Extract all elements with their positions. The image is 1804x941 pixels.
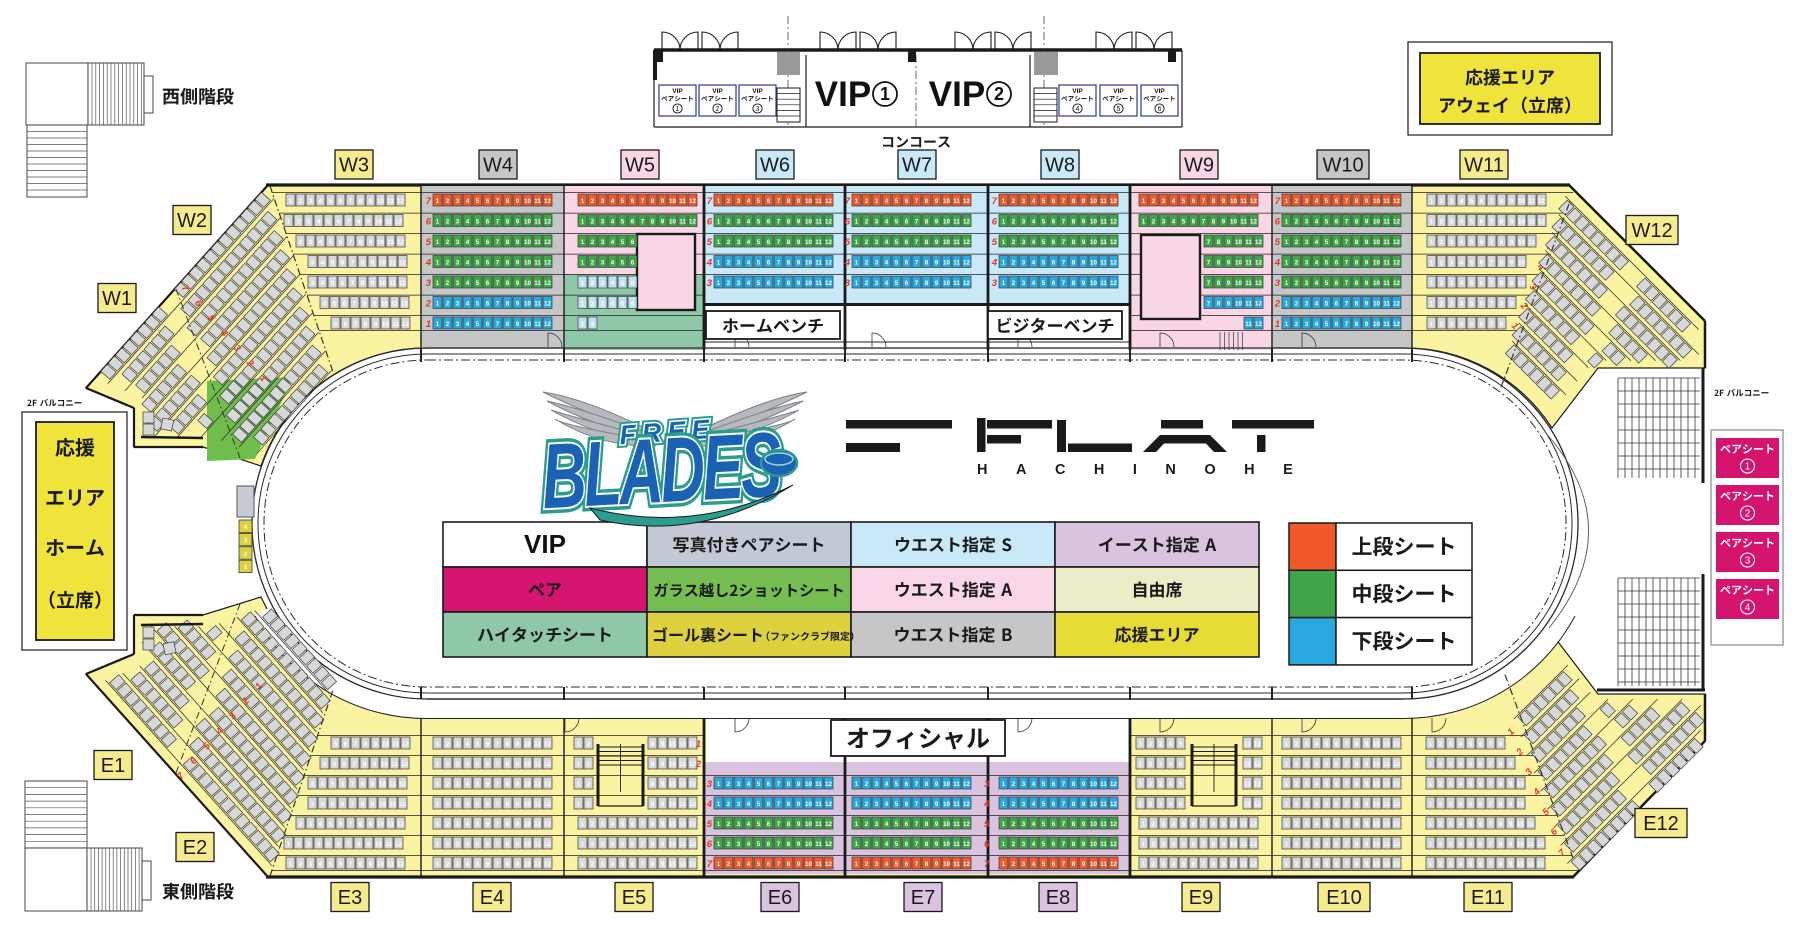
svg-text:7: 7 [496,801,500,808]
svg-text:12: 12 [544,198,551,205]
svg-text:7: 7 [1062,259,1066,266]
svg-text:W7: W7 [902,155,932,177]
svg-text:7: 7 [1345,761,1349,768]
svg-text:7: 7 [496,841,500,848]
svg-text:7: 7 [349,821,353,828]
svg-text:11: 11 [1240,218,1247,225]
svg-text:11: 11 [534,841,541,848]
svg-text:2: 2 [1440,300,1444,307]
svg-text:11: 11 [1528,198,1535,205]
svg-text:3: 3 [737,821,741,828]
svg-text:8: 8 [357,218,361,225]
svg-text:3: 3 [1159,741,1163,748]
svg-text:2: 2 [727,861,731,868]
svg-text:8: 8 [506,218,510,225]
svg-text:5: 5 [621,280,625,287]
svg-text:6: 6 [992,217,998,228]
svg-text:4: 4 [611,300,615,307]
svg-text:4: 4 [1460,198,1464,205]
svg-text:11: 11 [1240,841,1247,848]
svg-text:10: 10 [375,841,382,848]
svg-text:11: 11 [1245,321,1252,328]
svg-text:12: 12 [1393,741,1400,748]
svg-text:9: 9 [516,801,520,808]
svg-text:1: 1 [436,781,440,788]
svg-text:5: 5 [1042,198,1046,205]
svg-text:9: 9 [1222,821,1226,828]
svg-text:10: 10 [669,761,676,768]
svg-text:6: 6 [984,839,990,850]
svg-text:11: 11 [1383,198,1390,205]
svg-text:1: 1 [581,821,585,828]
svg-text:11: 11 [389,781,396,788]
svg-text:1: 1 [1142,218,1146,225]
svg-text:4: 4 [885,239,889,246]
svg-text:10: 10 [669,841,676,848]
svg-text:4: 4 [885,280,889,287]
svg-text:9: 9 [1510,300,1514,307]
svg-text:8: 8 [925,218,929,225]
svg-text:5: 5 [329,198,333,205]
svg-text:2: 2 [865,259,869,266]
svg-text:3: 3 [875,280,879,287]
svg-text:9: 9 [1509,781,1513,788]
svg-text:4: 4 [1315,861,1319,868]
svg-text:2: 2 [1295,280,1299,287]
svg-text:7: 7 [1062,841,1066,848]
svg-text:2: 2 [1012,781,1016,788]
svg-text:12: 12 [963,259,970,266]
svg-text:3: 3 [307,218,311,225]
svg-text:2: 2 [727,841,731,848]
svg-text:8: 8 [651,741,655,748]
svg-text:10: 10 [1090,821,1097,828]
svg-text:12: 12 [1110,821,1117,828]
svg-text:6: 6 [486,801,490,808]
svg-text:7: 7 [1345,300,1349,307]
svg-text:9: 9 [935,218,939,225]
svg-text:5: 5 [757,821,761,828]
svg-text:6: 6 [1052,259,1056,266]
svg-text:3: 3 [601,821,605,828]
svg-text:12: 12 [825,198,832,205]
svg-text:12: 12 [544,761,551,768]
svg-text:12: 12 [963,781,970,788]
svg-text:5: 5 [757,198,761,205]
svg-text:3: 3 [1449,781,1453,788]
svg-text:5: 5 [895,801,899,808]
svg-text:9: 9 [797,841,801,848]
svg-text:5: 5 [1042,280,1046,287]
svg-text:2: 2 [1295,218,1299,225]
svg-text:12: 12 [1250,821,1257,828]
svg-text:5: 5 [895,259,899,266]
svg-text:10: 10 [1373,741,1380,748]
svg-text:6: 6 [341,781,345,788]
svg-text:12: 12 [1250,198,1257,205]
svg-text:1: 1 [1285,821,1289,828]
svg-text:11: 11 [815,259,822,266]
svg-text:1: 1 [436,741,440,748]
svg-text:5: 5 [1325,239,1329,246]
svg-text:12: 12 [1393,300,1400,307]
svg-text:3: 3 [875,821,879,828]
svg-text:11: 11 [1383,841,1390,848]
svg-text:3: 3 [875,841,879,848]
svg-text:5: 5 [1325,280,1329,287]
svg-text:3: 3 [1305,781,1309,788]
svg-text:6: 6 [343,300,347,307]
svg-text:4: 4 [991,258,998,269]
svg-text:1: 1 [287,841,291,848]
svg-text:VIP: VIP [752,88,763,95]
svg-text:12: 12 [399,801,406,808]
svg-text:9: 9 [661,218,665,225]
svg-text:1: 1 [1430,321,1434,328]
svg-text:7: 7 [777,218,781,225]
svg-text:12: 12 [1393,239,1400,246]
svg-text:3: 3 [456,198,460,205]
svg-text:4: 4 [321,801,325,808]
svg-text:12: 12 [1254,781,1261,788]
svg-text:9: 9 [935,821,939,828]
svg-text:4: 4 [1315,801,1319,808]
svg-text:4: 4 [466,841,470,848]
svg-text:11: 11 [679,198,686,205]
svg-text:11: 11 [1244,761,1251,768]
svg-text:6: 6 [486,741,490,748]
svg-text:12: 12 [1110,280,1117,287]
svg-text:E9: E9 [1189,887,1213,909]
svg-text:12: 12 [1250,218,1257,225]
svg-text:8: 8 [925,259,929,266]
svg-text:10: 10 [524,741,531,748]
svg-text:3: 3 [1305,821,1309,828]
svg-text:10: 10 [1373,841,1380,848]
svg-text:3: 3 [737,801,741,808]
svg-text:8: 8 [1072,781,1076,788]
svg-text:9: 9 [661,761,665,768]
svg-text:2: 2 [1012,801,1016,808]
svg-text:11: 11 [1240,821,1247,828]
svg-text:5: 5 [329,239,333,246]
svg-text:11: 11 [387,861,394,868]
svg-text:10: 10 [943,280,950,287]
svg-text:5: 5 [331,259,335,266]
svg-text:9: 9 [1365,761,1369,768]
svg-text:4: 4 [1460,259,1464,266]
svg-text:6: 6 [486,321,490,328]
svg-text:9: 9 [373,300,377,307]
svg-text:12: 12 [1110,218,1117,225]
svg-text:2: 2 [299,861,303,868]
svg-text:10: 10 [1517,841,1524,848]
svg-text:2: 2 [1440,218,1444,225]
svg-text:9: 9 [1222,861,1226,868]
svg-text:6: 6 [1052,861,1056,868]
svg-text:5: 5 [1042,781,1046,788]
svg-text:7: 7 [777,821,781,828]
svg-text:11: 11 [1100,218,1107,225]
svg-text:2: 2 [1745,509,1751,520]
svg-text:6: 6 [341,259,345,266]
svg-text:3: 3 [1450,321,1454,328]
svg-text:7: 7 [1345,218,1349,225]
svg-text:8: 8 [1217,280,1221,287]
svg-text:8: 8 [1500,280,1504,287]
svg-text:11: 11 [534,781,541,788]
svg-text:6: 6 [486,239,490,246]
svg-text:9: 9 [797,801,801,808]
svg-text:5: 5 [329,821,333,828]
svg-text:W8: W8 [1045,155,1075,177]
svg-text:2: 2 [727,801,731,808]
svg-text:4: 4 [1460,321,1464,328]
svg-text:9: 9 [371,280,375,287]
svg-text:3: 3 [737,781,741,788]
svg-text:5: 5 [1179,781,1183,788]
svg-text:12: 12 [1393,801,1400,808]
svg-text:5: 5 [1469,821,1473,828]
svg-text:1: 1 [717,239,721,246]
svg-text:3: 3 [737,198,741,205]
svg-text:5: 5 [1179,801,1183,808]
svg-text:8: 8 [651,781,655,788]
svg-text:7: 7 [984,859,990,870]
svg-text:5: 5 [895,821,899,828]
svg-text:10: 10 [381,300,388,307]
svg-text:1: 1 [577,761,581,768]
svg-text:11: 11 [1383,861,1390,868]
svg-text:7: 7 [641,861,645,868]
svg-text:11: 11 [1240,861,1247,868]
svg-text:6: 6 [1335,801,1339,808]
svg-text:9: 9 [797,781,801,788]
svg-text:3: 3 [737,239,741,246]
svg-text:9: 9 [1365,198,1369,205]
svg-text:7: 7 [777,259,781,266]
svg-text:8: 8 [1355,321,1359,328]
svg-text:12: 12 [1110,841,1117,848]
svg-text:9: 9 [1082,841,1086,848]
svg-text:1: 1 [1285,300,1289,307]
svg-text:3: 3 [601,218,605,225]
svg-text:6: 6 [1052,280,1056,287]
svg-text:10: 10 [805,239,812,246]
svg-text:7: 7 [1489,841,1493,848]
svg-text:6: 6 [1480,321,1484,328]
svg-text:8: 8 [1217,300,1221,307]
svg-text:10: 10 [1090,781,1097,788]
svg-text:9: 9 [935,239,939,246]
svg-text:5: 5 [757,781,761,788]
svg-text:12: 12 [1255,239,1262,246]
svg-text:8: 8 [651,801,655,808]
svg-text:E3: E3 [338,887,362,909]
svg-text:2: 2 [865,801,869,808]
svg-text:9: 9 [516,239,520,246]
svg-text:12: 12 [1110,198,1117,205]
svg-text:2: 2 [865,841,869,848]
svg-text:7: 7 [1345,198,1349,205]
svg-text:4: 4 [1459,781,1463,788]
svg-text:2: 2 [1295,300,1299,307]
svg-text:10: 10 [669,218,676,225]
svg-text:VIP: VIP [815,75,871,114]
svg-text:6: 6 [1192,218,1196,225]
svg-text:3: 3 [1022,239,1026,246]
svg-text:2: 2 [1152,821,1156,828]
svg-text:5: 5 [1325,741,1329,748]
svg-text:3: 3 [1022,259,1026,266]
svg-text:6: 6 [1335,239,1339,246]
svg-text:2: 2 [1295,781,1299,788]
svg-text:2: 2 [1149,781,1153,788]
svg-text:1: 1 [436,861,440,868]
svg-text:11: 11 [1528,239,1535,246]
svg-text:3: 3 [1449,841,1453,848]
svg-text:7: 7 [1202,841,1206,848]
svg-text:5: 5 [757,239,761,246]
svg-text:2: 2 [1012,821,1016,828]
svg-text:12: 12 [397,198,404,205]
svg-text:4: 4 [466,741,470,748]
svg-text:1: 1 [855,280,859,287]
svg-text:3: 3 [1159,801,1163,808]
svg-text:1: 1 [1139,781,1143,788]
svg-text:1: 1 [581,198,585,205]
svg-text:2: 2 [865,861,869,868]
svg-text:4: 4 [466,821,470,828]
svg-text:4: 4 [466,198,470,205]
svg-text:2: 2 [1149,761,1153,768]
svg-text:7: 7 [496,821,500,828]
svg-text:4: 4 [1172,198,1176,205]
svg-text:7: 7 [1489,861,1493,868]
svg-text:2: 2 [1295,861,1299,868]
svg-text:12: 12 [963,239,970,246]
svg-text:5: 5 [331,781,335,788]
svg-text:5: 5 [1469,801,1473,808]
svg-text:8: 8 [1500,198,1504,205]
svg-text:2: 2 [1439,781,1443,788]
svg-text:11: 11 [1383,781,1390,788]
svg-text:7: 7 [777,781,781,788]
svg-text:1: 1 [1002,861,1006,868]
svg-text:7: 7 [351,259,355,266]
svg-text:3: 3 [737,259,741,266]
svg-text:1: 1 [1285,280,1289,287]
svg-text:6: 6 [1335,300,1339,307]
svg-text:E2: E2 [183,837,207,859]
svg-text:12: 12 [963,841,970,848]
svg-text:10: 10 [1373,761,1380,768]
svg-text:2: 2 [446,761,450,768]
svg-text:1: 1 [436,198,440,205]
svg-text:7: 7 [496,741,500,748]
svg-text:2: 2 [1152,198,1156,205]
svg-text:4: 4 [466,280,470,287]
svg-text:5: 5 [895,218,899,225]
svg-text:10: 10 [1373,280,1380,287]
svg-text:8: 8 [787,841,791,848]
svg-text:5: 5 [1470,198,1474,205]
svg-text:7: 7 [1345,781,1349,788]
svg-text:6: 6 [905,841,909,848]
svg-text:10: 10 [1235,300,1242,307]
svg-text:6: 6 [1479,761,1483,768]
svg-text:10: 10 [1518,280,1525,287]
svg-text:2: 2 [1439,821,1443,828]
svg-text:12: 12 [689,198,696,205]
svg-text:9: 9 [797,218,801,225]
svg-text:8: 8 [506,741,510,748]
svg-text:5: 5 [621,259,625,266]
svg-text:8: 8 [651,841,655,848]
svg-text:3: 3 [1305,198,1309,205]
svg-text:7: 7 [351,801,355,808]
svg-text:4: 4 [317,218,321,225]
svg-text:1: 1 [1430,259,1434,266]
svg-text:E6: E6 [768,887,792,909]
svg-text:12: 12 [544,861,551,868]
svg-text:10: 10 [669,198,676,205]
svg-text:5: 5 [476,821,480,828]
svg-text:5: 5 [895,198,899,205]
svg-text:2: 2 [299,198,303,205]
svg-text:9: 9 [516,761,520,768]
svg-text:5: 5 [1469,761,1473,768]
svg-text:10: 10 [1373,801,1380,808]
svg-text:2: 2 [425,299,432,310]
svg-text:9: 9 [661,781,665,788]
svg-text:10: 10 [805,198,812,205]
svg-text:8: 8 [1072,821,1076,828]
svg-text:11: 11 [534,239,541,246]
svg-text:4: 4 [611,218,615,225]
svg-text:8: 8 [787,218,791,225]
svg-text:4: 4 [611,239,615,246]
svg-text:3: 3 [456,321,460,328]
svg-text:1: 1 [581,300,585,307]
svg-text:4: 4 [1459,761,1463,768]
svg-text:1: 1 [1285,801,1289,808]
svg-text:1: 1 [1429,801,1433,808]
svg-text:3: 3 [875,801,879,808]
svg-text:6: 6 [1335,781,1339,788]
svg-text:6: 6 [1192,861,1196,868]
svg-text:10: 10 [381,761,388,768]
svg-text:9: 9 [1365,300,1369,307]
svg-text:8: 8 [1217,239,1221,246]
svg-text:2: 2 [1012,280,1016,287]
svg-text:9: 9 [1365,781,1369,788]
svg-text:5: 5 [1325,841,1329,848]
svg-text:11: 11 [679,741,686,748]
svg-text:12: 12 [399,280,406,287]
svg-text:3: 3 [1162,821,1166,828]
svg-text:4: 4 [747,781,751,788]
svg-text:8: 8 [506,801,510,808]
svg-text:6: 6 [486,841,490,848]
svg-text:5: 5 [1182,821,1186,828]
svg-text:5: 5 [476,239,480,246]
svg-text:7: 7 [992,196,998,207]
svg-text:8: 8 [1355,801,1359,808]
svg-text:11: 11 [534,198,541,205]
svg-text:W9: W9 [1184,155,1214,177]
svg-text:10: 10 [943,861,950,868]
